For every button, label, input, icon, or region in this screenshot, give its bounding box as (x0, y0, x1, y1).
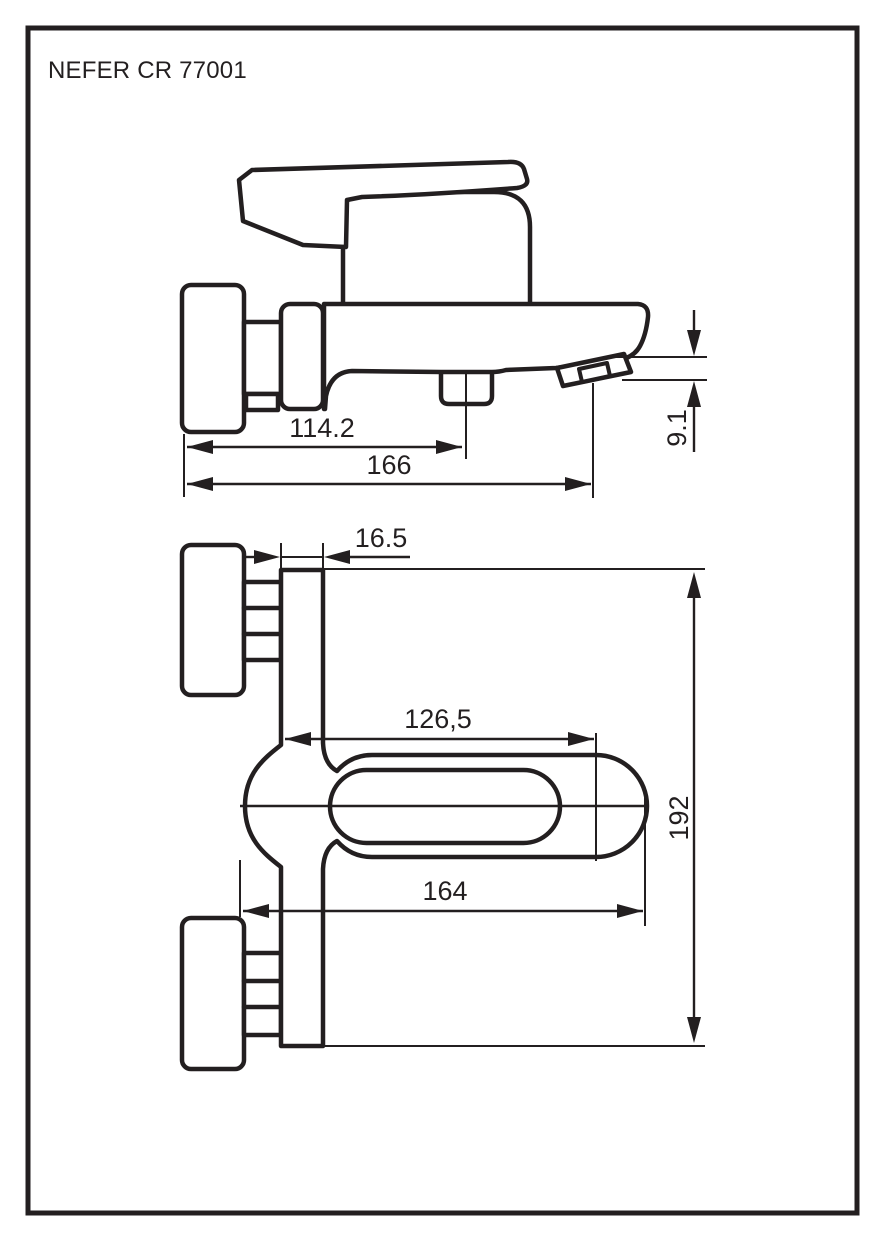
dimension-body-width: 16.5 (244, 523, 410, 569)
arrow-left (187, 440, 213, 454)
wall-plate-side (182, 285, 244, 432)
arrow-right (568, 732, 594, 746)
dimension-value: 166 (366, 450, 411, 480)
dimension-value: 9.1 (662, 409, 692, 447)
arrow-up (687, 381, 701, 407)
escutcheon (281, 304, 323, 409)
wall-plate-lower (182, 918, 244, 1069)
arrow-down (687, 1017, 701, 1043)
arrow-right (436, 440, 462, 454)
arrow-up (687, 572, 701, 598)
spec-sheet-page: NEFER CR 77001 114.2 (0, 0, 886, 1241)
dimension-value: 16.5 (355, 523, 408, 553)
dimension-value: 164 (422, 876, 467, 906)
wall-connector-step (246, 394, 278, 410)
arrow-down (687, 330, 701, 356)
arrow-left (243, 904, 269, 918)
wall-connector-upper (244, 582, 281, 660)
arrow-left (324, 550, 350, 564)
dimension-overall-length: 166 (187, 450, 591, 491)
top-view (182, 545, 648, 1069)
product-title: NEFER CR 77001 (48, 57, 247, 84)
arrow-left (187, 477, 213, 491)
wall-connector-side (244, 322, 281, 394)
technical-drawing: NEFER CR 77001 114.2 (0, 0, 886, 1241)
wall-connector-lower (244, 953, 281, 1035)
cartridge-housing (343, 192, 530, 306)
arrow-right (617, 904, 643, 918)
wall-plate-upper (182, 545, 244, 695)
side-view (182, 162, 648, 432)
arrow-right (565, 477, 591, 491)
dimension-value: 192 (664, 795, 694, 840)
dimension-value: 114.2 (289, 413, 355, 443)
dimension-value: 126,5 (404, 704, 472, 734)
arrow-right (254, 550, 280, 564)
